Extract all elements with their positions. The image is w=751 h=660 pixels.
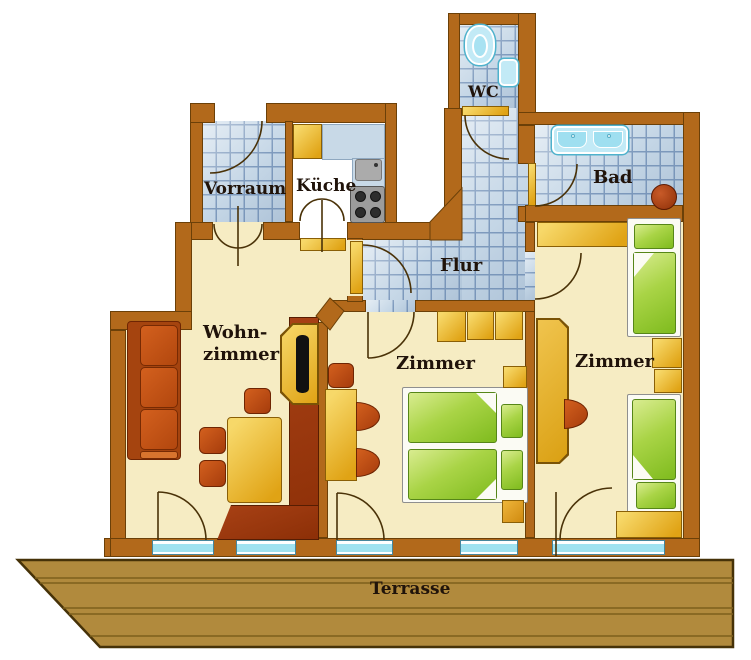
room-label-wohnzimmer-line1: Wohn- <box>203 322 267 343</box>
window <box>552 540 665 555</box>
door-leaf <box>528 163 536 206</box>
window <box>152 540 214 555</box>
faucet-dot <box>571 134 575 138</box>
sofa-base <box>140 451 178 459</box>
room-label-terrasse: Terrasse <box>370 579 450 599</box>
wardrobe <box>654 369 682 393</box>
toilet <box>465 25 495 65</box>
burner <box>370 207 381 218</box>
wall <box>285 121 293 222</box>
round-stool <box>651 184 677 210</box>
faucet-dot <box>607 134 611 138</box>
terrace-deck <box>18 560 733 647</box>
dining-table <box>227 417 282 503</box>
wall <box>385 103 397 240</box>
sofa-cushion <box>140 367 178 408</box>
door-opening <box>213 222 263 240</box>
door-threshold <box>300 238 346 251</box>
chair <box>244 388 271 414</box>
wardrobe <box>537 222 628 247</box>
tv-cabinet <box>280 323 319 405</box>
pillow <box>501 404 523 438</box>
window <box>236 540 296 555</box>
nightstand <box>503 366 527 388</box>
basin <box>557 131 587 148</box>
burner <box>355 191 366 202</box>
room-label-bad: Bad <box>593 168 632 188</box>
window <box>460 540 518 555</box>
room-label-wohnzimmer: Wohn- zimmer <box>203 322 279 366</box>
wardrobe <box>652 338 682 368</box>
wall <box>518 13 536 125</box>
dresser-top <box>538 320 567 462</box>
room-label-kueche: Küche <box>296 176 356 196</box>
toilet-bowl <box>472 34 488 58</box>
wall <box>518 112 700 125</box>
pillow <box>634 224 674 249</box>
wall <box>525 222 535 252</box>
chair <box>328 363 354 388</box>
wardrobe <box>467 311 494 340</box>
wall <box>263 222 300 240</box>
room-label-wc: WC <box>468 82 499 102</box>
wall <box>190 103 215 123</box>
door-opening <box>366 300 415 312</box>
sofa <box>127 321 181 460</box>
room-label-wohnzimmer-line2: zimmer <box>203 344 279 365</box>
wall <box>190 103 203 240</box>
tv <box>296 335 309 393</box>
wall <box>518 125 535 164</box>
floor-plan: Vorraum Küche WC Bad Flur Wohn- zimmer Z… <box>0 0 751 660</box>
wardrobe <box>437 311 466 342</box>
wardrobe <box>495 311 523 340</box>
room-label-vorraum: Vorraum <box>204 179 286 199</box>
kitchen-sink <box>355 159 382 181</box>
wall <box>266 103 397 123</box>
wall <box>444 108 462 240</box>
wall <box>110 330 126 557</box>
faucet-dot <box>374 163 378 167</box>
kitchen-cabinet <box>293 124 322 159</box>
room-label-flur: Flur <box>440 256 482 276</box>
pillow <box>636 482 676 509</box>
cabinet <box>616 511 682 538</box>
door-leaf <box>350 241 363 294</box>
nightstand <box>502 500 524 523</box>
burner <box>370 191 381 202</box>
chair <box>199 427 226 454</box>
burner <box>355 207 366 218</box>
double-sink <box>552 126 628 154</box>
wall <box>448 13 460 110</box>
sofa-cushion <box>140 325 178 366</box>
window <box>336 540 393 555</box>
dresser <box>536 318 569 464</box>
room-vorraum-floor <box>203 121 285 222</box>
media-wall <box>217 505 319 540</box>
wash-basin <box>499 59 518 86</box>
wall <box>683 112 700 557</box>
room-wohnzimmer-floor <box>192 238 347 330</box>
pillow <box>501 450 523 490</box>
door-threshold <box>462 106 509 116</box>
room-label-zimmer-rechts: Zimmer <box>575 352 654 372</box>
door-opening <box>525 252 535 300</box>
kitchen-counter <box>322 124 385 160</box>
room-label-zimmer-mitte: Zimmer <box>396 354 475 374</box>
sofa-cushion <box>140 409 178 450</box>
desk <box>325 389 357 481</box>
basin <box>593 131 623 148</box>
chair <box>199 460 226 487</box>
